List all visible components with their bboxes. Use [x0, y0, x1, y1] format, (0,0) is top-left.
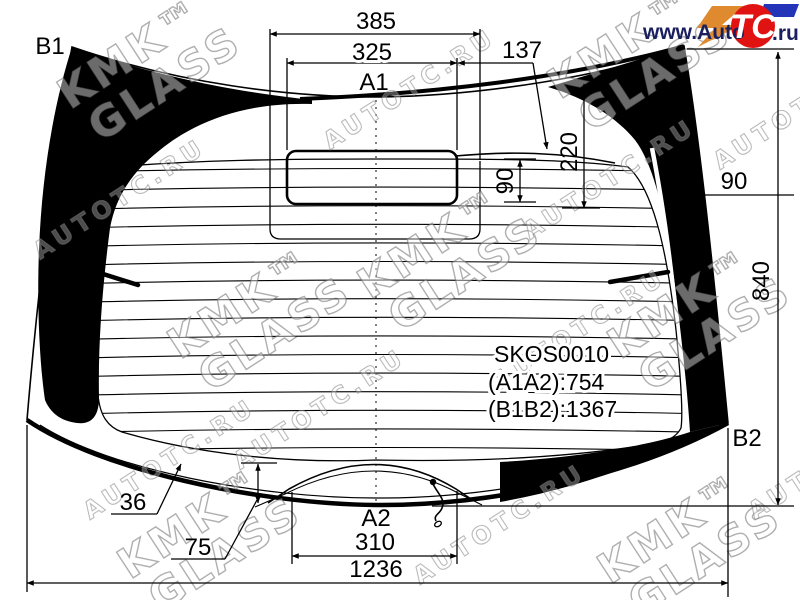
antenna-line-top	[455, 153, 615, 163]
defroster-line	[80, 429, 702, 433]
part-dim-b: (B1B2):1367	[488, 396, 617, 422]
part-dim-a: (A1A2):754	[488, 369, 605, 395]
logo-text-suffix: .ru	[772, 22, 799, 45]
dim-325-label: 325	[352, 39, 392, 66]
part-code: SKOS0010	[494, 341, 609, 367]
defroster-line	[80, 224, 702, 228]
label-a2: A2	[361, 505, 390, 532]
dim-36-label: 36	[120, 489, 147, 516]
connector-terminal	[434, 520, 443, 528]
part-info: SKOS0010 (A1A2):754 (B1B2):1367	[488, 341, 617, 422]
dim-385-label: 385	[356, 8, 396, 35]
label-b1: B1	[35, 33, 64, 60]
dim-75-label: 75	[185, 534, 212, 561]
watermark-brand: KMK™GLASS	[589, 454, 791, 600]
bottom-hump-outer	[268, 465, 474, 504]
dim-90v-label: 90	[492, 168, 519, 195]
dim-310-label: 310	[355, 529, 395, 556]
dim-220-label: 220	[556, 132, 583, 172]
rear-glass-diagram: KMK™GLASSKMK™GLASSKMK™GLASSKMK™GLASSKMK™…	[0, 0, 800, 600]
label-b2: B2	[732, 425, 761, 452]
watermark-site: AUTOTC.RU	[318, 23, 501, 156]
dim-840-label: 840	[748, 261, 775, 301]
watermark-brand: KMK™GLASS	[159, 229, 361, 405]
watermark-site: AUTOTC.RU	[743, 393, 800, 526]
watermark-site: AUTOTC.RU	[708, 43, 800, 176]
dim-90r-label: 90	[721, 168, 748, 195]
logo-text-emblem: TC	[730, 8, 776, 46]
defroster-line	[80, 206, 702, 210]
dim-137-label: 137	[502, 37, 542, 64]
dim-1236-label: 1236	[349, 556, 402, 583]
defroster-line	[80, 392, 702, 396]
label-a1: A1	[359, 69, 388, 96]
